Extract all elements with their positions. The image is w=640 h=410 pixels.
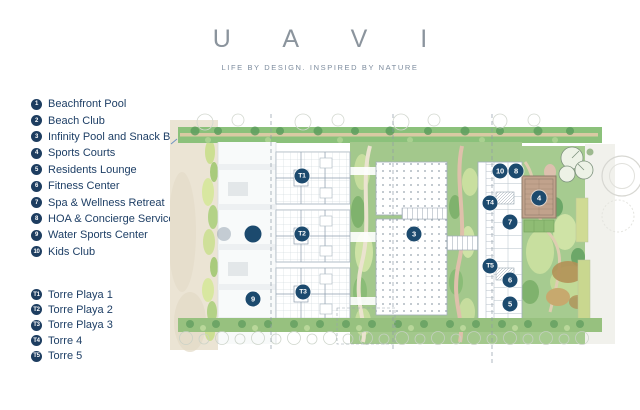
map-marker-label: 5: [508, 300, 512, 309]
site-plan-map: T1 T2 T3 T4 T5 3 4 5 6 7 8 9 10: [0, 0, 640, 410]
map-marker-label: 9: [251, 295, 255, 304]
map-marker[interactable]: 6: [503, 273, 518, 288]
top-road: [178, 127, 602, 144]
map-marker[interactable]: 9: [246, 292, 261, 307]
map-marker[interactable]: 3: [407, 227, 422, 242]
map-marker[interactable]: 5: [503, 297, 518, 312]
site-plan-graphic: [170, 112, 640, 410]
map-marker[interactable]: T5: [483, 259, 498, 274]
map-marker-label: 3: [412, 230, 416, 239]
map-marker[interactable]: 7: [503, 215, 518, 230]
map-marker-label: 8: [514, 167, 518, 176]
map-marker-label: T5: [486, 263, 494, 270]
map-marker-label: T3: [299, 289, 307, 296]
map-marker[interactable]: T4: [483, 196, 498, 211]
map-marker-label: 7: [508, 218, 512, 227]
bottom-landscape: [178, 318, 602, 332]
map-marker-label: T1: [298, 173, 306, 180]
map-marker-label: 10: [496, 167, 504, 176]
map-marker[interactable]: T3: [296, 285, 311, 300]
promenade: [218, 142, 276, 344]
map-marker-label: 4: [537, 194, 541, 203]
map-dot: [245, 226, 262, 243]
map-marker-label: T4: [486, 200, 494, 207]
map-marker-label: 6: [508, 276, 512, 285]
map-marker[interactable]: 8: [509, 164, 524, 179]
map-marker-label: T2: [298, 231, 306, 238]
map-dot: [217, 227, 231, 241]
map-marker[interactable]: 10: [493, 164, 508, 179]
tower-buildings: [276, 152, 350, 320]
map-marker[interactable]: 4: [532, 191, 547, 206]
map-marker[interactable]: T1: [295, 169, 310, 184]
map-marker[interactable]: T2: [295, 227, 310, 242]
